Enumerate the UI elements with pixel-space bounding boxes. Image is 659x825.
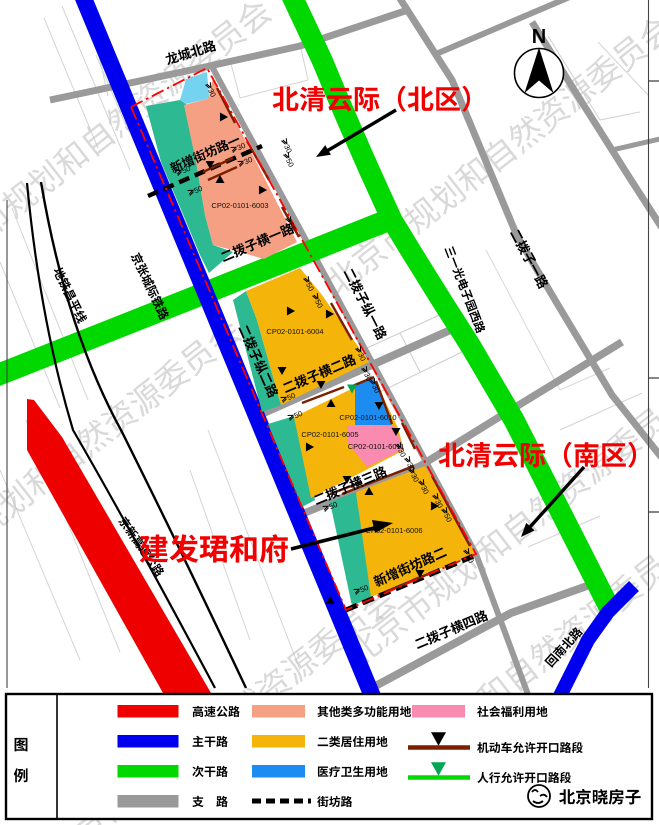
svg-text:CP02-0101-6003: CP02-0101-6003 — [211, 201, 268, 210]
svg-text:CP02-0101-6005: CP02-0101-6005 — [301, 430, 358, 439]
svg-text:CP02-0101-6004: CP02-0101-6004 — [266, 327, 323, 336]
svg-text:CP02-0101-6011: CP02-0101-6011 — [348, 442, 405, 451]
svg-text:CP02-0101-6010: CP02-0101-6010 — [339, 413, 396, 422]
svg-text:N: N — [532, 26, 546, 48]
